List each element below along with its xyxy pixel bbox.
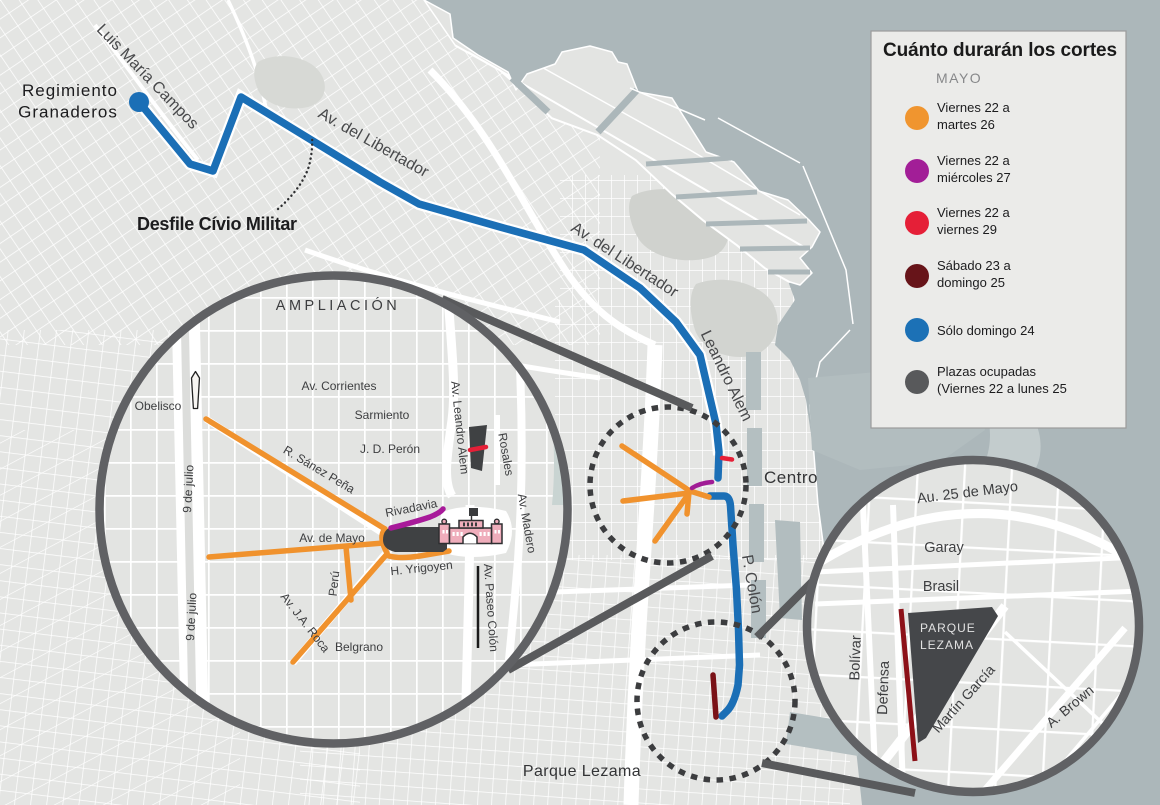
svg-text:Granaderos: Granaderos (18, 103, 118, 122)
svg-text:Plazas ocupadas: Plazas ocupadas (937, 364, 1037, 379)
svg-text:AMPLIACIÓN: AMPLIACIÓN (276, 297, 400, 314)
svg-text:Obelisco: Obelisco (135, 399, 182, 413)
svg-text:Av. Corrientes: Av. Corrientes (302, 379, 377, 393)
svg-text:Cuánto durarán los cortes: Cuánto durarán los cortes (883, 40, 1117, 61)
svg-text:Belgrano: Belgrano (335, 640, 383, 654)
svg-text:Viernes 22 a: Viernes 22 a (937, 153, 1011, 168)
svg-text:9 de julio: 9 de julio (183, 592, 200, 641)
svg-text:Brasil: Brasil (923, 579, 959, 595)
svg-text:Sarmiento: Sarmiento (355, 408, 410, 422)
svg-text:J. D. Perón: J. D. Perón (360, 442, 420, 456)
svg-text:viernes 29: viernes 29 (937, 222, 997, 237)
svg-text:LEZAMA: LEZAMA (920, 638, 974, 652)
svg-text:Desfile Cívio Militar: Desfile Cívio Militar (137, 214, 297, 234)
svg-text:Defensa: Defensa (875, 660, 893, 715)
svg-text:Av. de Mayo: Av. de Mayo (299, 531, 365, 545)
svg-text:Sólo domingo 24: Sólo domingo 24 (937, 323, 1035, 338)
svg-text:Bolívar: Bolívar (847, 635, 865, 681)
svg-text:MAYO: MAYO (936, 70, 982, 86)
svg-text:PARQUE: PARQUE (920, 621, 976, 635)
svg-text:miércoles 27: miércoles 27 (937, 170, 1011, 185)
svg-text:Sábado 23 a: Sábado 23 a (937, 258, 1012, 273)
svg-text:(Viernes 22 a lunes 25: (Viernes 22 a lunes 25 (937, 381, 1067, 396)
svg-text:Perú: Perú (326, 570, 343, 597)
svg-text:domingo 25: domingo 25 (937, 275, 1005, 290)
svg-text:Parque Lezama: Parque Lezama (523, 763, 641, 780)
svg-text:Garay: Garay (924, 540, 964, 556)
svg-text:Viernes 22 a: Viernes 22 a (937, 205, 1011, 220)
svg-text:Viernes 22 a: Viernes 22 a (937, 100, 1011, 115)
svg-text:Centro: Centro (764, 468, 818, 487)
svg-text:Regimiento: Regimiento (22, 81, 118, 100)
svg-text:9 de julio: 9 de julio (180, 464, 197, 513)
svg-text:martes 26: martes 26 (937, 117, 995, 132)
